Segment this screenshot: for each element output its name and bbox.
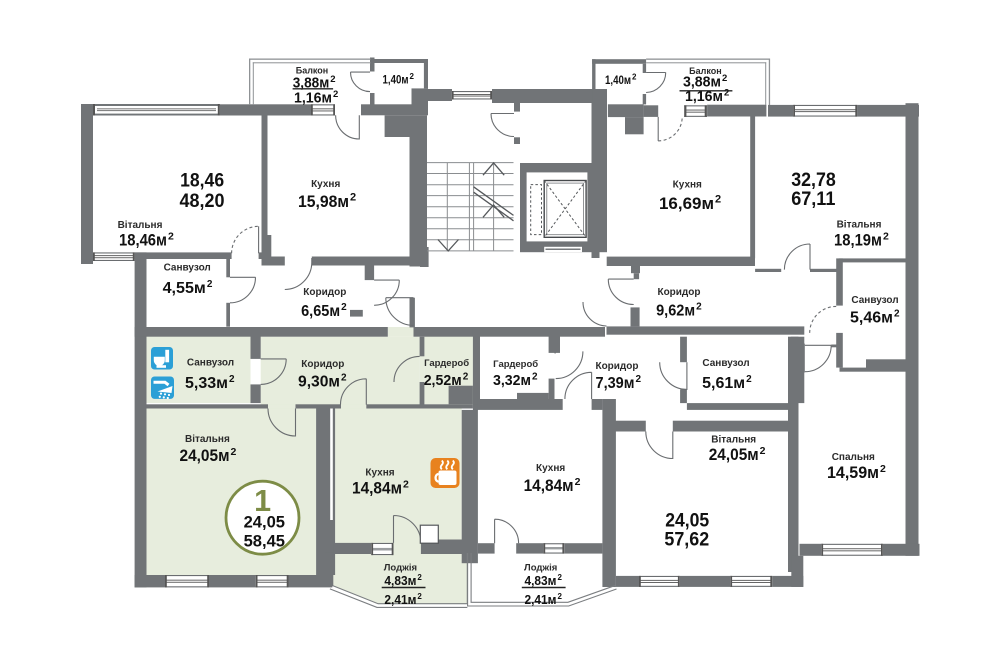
svg-text:3,32м: 3,32м bbox=[493, 372, 531, 389]
svg-text:Коридор: Коридор bbox=[657, 287, 700, 298]
svg-text:1,16м: 1,16м bbox=[294, 91, 332, 107]
svg-text:2: 2 bbox=[746, 374, 752, 385]
svg-text:2: 2 bbox=[880, 463, 886, 475]
svg-text:2: 2 bbox=[557, 573, 562, 582]
svg-text:9,62м: 9,62м bbox=[656, 303, 695, 320]
svg-text:32,78: 32,78 bbox=[791, 170, 836, 191]
svg-text:Санвузол: Санвузол bbox=[164, 263, 211, 274]
svg-text:Санвузол: Санвузол bbox=[702, 358, 749, 369]
svg-text:2: 2 bbox=[883, 231, 889, 243]
svg-text:16,69м: 16,69м bbox=[659, 194, 714, 213]
svg-text:Коридор: Коридор bbox=[303, 287, 346, 298]
svg-text:2,41м: 2,41м bbox=[525, 593, 557, 607]
svg-text:Санвузол: Санвузол bbox=[851, 295, 898, 306]
svg-text:67,11: 67,11 bbox=[791, 189, 836, 210]
svg-text:Санвузол: Санвузол bbox=[187, 358, 234, 369]
svg-text:57,62: 57,62 bbox=[664, 530, 709, 551]
svg-text:Балкон: Балкон bbox=[296, 65, 329, 75]
svg-text:4,83м: 4,83м bbox=[384, 574, 416, 588]
svg-text:4,83м: 4,83м bbox=[525, 574, 557, 588]
svg-text:7,39м: 7,39м bbox=[596, 375, 635, 392]
svg-text:24,05: 24,05 bbox=[244, 514, 285, 532]
svg-text:2: 2 bbox=[409, 72, 414, 81]
svg-text:24,05: 24,05 bbox=[665, 510, 709, 531]
svg-text:Кухня: Кухня bbox=[673, 180, 702, 191]
svg-text:18,46м: 18,46м bbox=[119, 232, 167, 250]
svg-text:2: 2 bbox=[341, 302, 347, 313]
svg-text:2: 2 bbox=[168, 231, 174, 243]
svg-text:5,61м: 5,61м bbox=[702, 375, 745, 392]
svg-text:2: 2 bbox=[636, 374, 642, 385]
svg-text:Лоджія: Лоджія bbox=[384, 563, 417, 574]
svg-text:2: 2 bbox=[632, 73, 637, 82]
svg-text:48,20: 48,20 bbox=[180, 191, 225, 212]
svg-text:2: 2 bbox=[330, 74, 335, 85]
svg-text:2: 2 bbox=[557, 592, 562, 601]
svg-text:Вітальня: Вітальня bbox=[711, 435, 756, 446]
svg-text:Кухня: Кухня bbox=[365, 467, 394, 478]
svg-text:2: 2 bbox=[760, 445, 766, 457]
svg-text:18,19м: 18,19м bbox=[834, 232, 882, 250]
svg-text:24,05м: 24,05м bbox=[709, 446, 759, 464]
svg-text:2: 2 bbox=[575, 476, 581, 488]
svg-text:24,05м: 24,05м bbox=[180, 447, 230, 465]
svg-text:2: 2 bbox=[341, 373, 347, 384]
svg-text:Вітальня: Вітальня bbox=[185, 434, 230, 445]
svg-text:2: 2 bbox=[350, 192, 356, 204]
svg-text:58,45: 58,45 bbox=[244, 533, 285, 551]
svg-text:2,41м: 2,41м bbox=[384, 593, 416, 607]
svg-text:1,40м: 1,40м bbox=[383, 73, 409, 87]
svg-text:2: 2 bbox=[229, 374, 235, 385]
svg-text:15,98м: 15,98м bbox=[298, 192, 349, 211]
svg-text:4,55м: 4,55м bbox=[163, 280, 206, 297]
svg-text:9,30м: 9,30м bbox=[298, 374, 340, 391]
svg-text:Вітальня: Вітальня bbox=[837, 220, 882, 231]
svg-text:14,84м: 14,84м bbox=[524, 477, 574, 495]
svg-text:2: 2 bbox=[417, 573, 422, 582]
svg-text:Кухня: Кухня bbox=[311, 179, 340, 190]
svg-text:5,46м: 5,46м bbox=[850, 310, 893, 327]
svg-text:6,65м: 6,65м bbox=[301, 303, 340, 320]
svg-text:Коридор: Коридор bbox=[595, 361, 638, 372]
svg-text:5,33м: 5,33м bbox=[185, 375, 228, 392]
svg-text:Гардероб: Гардероб bbox=[493, 359, 538, 370]
svg-text:2: 2 bbox=[230, 446, 236, 458]
svg-text:2,52м: 2,52м bbox=[424, 372, 462, 389]
svg-text:2: 2 bbox=[207, 279, 213, 290]
svg-text:2: 2 bbox=[722, 73, 727, 84]
svg-text:14,84м: 14,84м bbox=[352, 480, 402, 498]
svg-text:1,40м: 1,40м bbox=[605, 73, 631, 87]
svg-text:Гардероб: Гардероб bbox=[424, 358, 469, 369]
svg-text:2: 2 bbox=[333, 89, 338, 100]
svg-text:Кухня: Кухня bbox=[536, 463, 565, 474]
svg-text:14,59м: 14,59м bbox=[827, 464, 879, 482]
svg-text:2: 2 bbox=[724, 88, 729, 99]
svg-text:Лоджія: Лоджія bbox=[524, 563, 557, 574]
svg-text:2: 2 bbox=[417, 592, 422, 601]
svg-text:Вітальня: Вітальня bbox=[118, 220, 163, 231]
svg-text:Коридор: Коридор bbox=[301, 359, 344, 370]
svg-text:2: 2 bbox=[403, 479, 409, 491]
svg-text:Спальня: Спальня bbox=[832, 452, 875, 463]
svg-text:2: 2 bbox=[715, 194, 721, 206]
svg-text:2: 2 bbox=[696, 302, 702, 313]
svg-text:2: 2 bbox=[463, 371, 469, 382]
svg-text:2: 2 bbox=[894, 309, 900, 320]
svg-text:18,46: 18,46 bbox=[180, 171, 224, 192]
svg-text:2: 2 bbox=[532, 371, 538, 382]
